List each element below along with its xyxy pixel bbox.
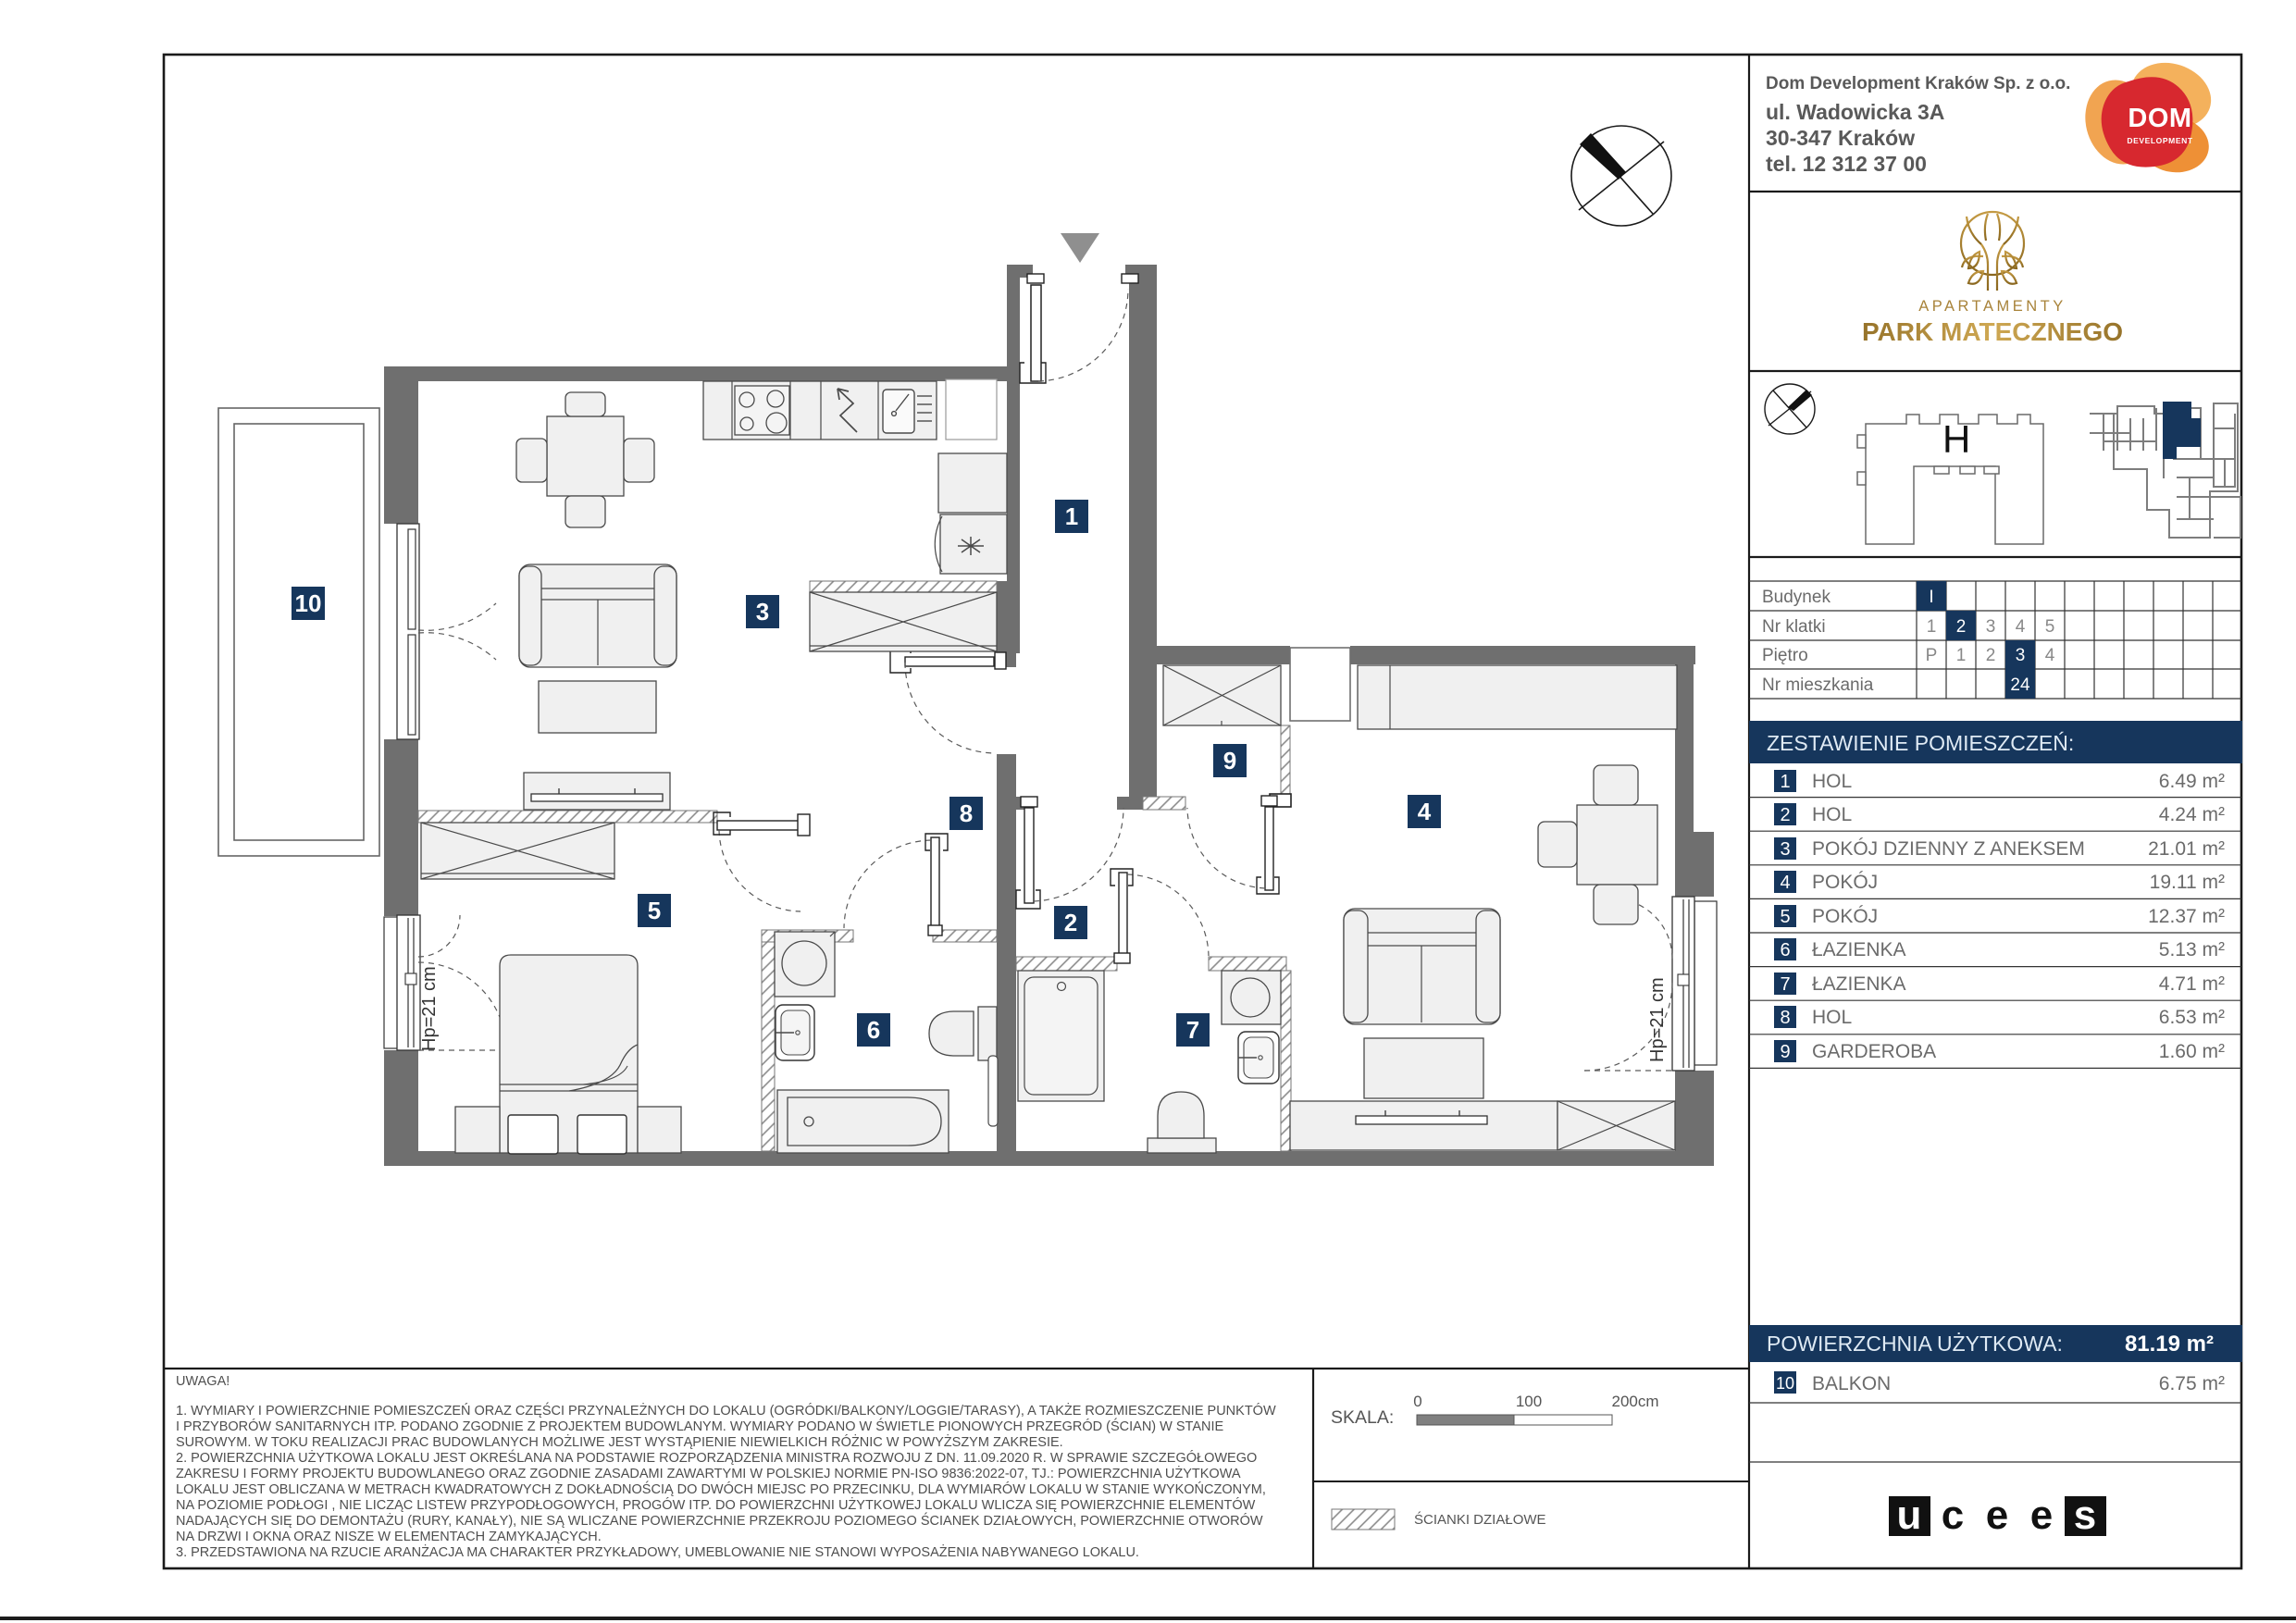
svg-text:u: u <box>1897 1493 1922 1538</box>
svg-text:2: 2 <box>1780 805 1790 825</box>
svg-text:Budynek: Budynek <box>1762 588 1831 607</box>
svg-text:6.75 m²: 6.75 m² <box>2159 1373 2225 1394</box>
svg-text:I PRZYBORÓW SANITARNYCH ITP. P: I PRZYBORÓW SANITARNYCH ITP. PODANO ZGOD… <box>176 1418 1223 1434</box>
svg-text:POKÓJ: POKÓJ <box>1812 906 1878 927</box>
svg-text:POWIERZCHNIA UŻYTKOWA:: POWIERZCHNIA UŻYTKOWA: <box>1767 1332 2063 1356</box>
svg-text:5: 5 <box>2045 617 2055 637</box>
svg-text:9: 9 <box>1223 747 1236 774</box>
svg-text:APARTAMENTY: APARTAMENTY <box>1918 298 2066 315</box>
svg-text:I: I <box>1929 588 1933 607</box>
svg-text:HOL: HOL <box>1812 804 1852 825</box>
svg-text:tel. 12 312 37 00: tel. 12 312 37 00 <box>1766 152 1927 176</box>
svg-text:12.37 m²: 12.37 m² <box>2148 906 2225 927</box>
svg-text:ZAKRESU I FORMY PROJEKTU BUDOW: ZAKRESU I FORMY PROJEKTU BUDOWLANEGO ORA… <box>176 1465 1241 1481</box>
svg-text:3: 3 <box>2016 646 2026 665</box>
svg-text:4: 4 <box>1780 873 1790 893</box>
svg-text:100: 100 <box>1516 1393 1542 1410</box>
svg-text:HOL: HOL <box>1812 1007 1852 1028</box>
svg-text:4.71 m²: 4.71 m² <box>2159 973 2225 995</box>
svg-text:4: 4 <box>2045 646 2055 665</box>
svg-text:7: 7 <box>1780 974 1790 995</box>
svg-text:2. POWIERZCHNIA UŻYTKOWA LOKAL: 2. POWIERZCHNIA UŻYTKOWA LOKALU JEST OKR… <box>176 1449 1257 1466</box>
svg-text:GARDEROBA: GARDEROBA <box>1812 1041 1936 1062</box>
svg-text:4.24 m²: 4.24 m² <box>2159 804 2225 825</box>
svg-text:SUROWYM. W TOKU REALIZACJI PRA: SUROWYM. W TOKU REALIZACJI PRAC BUDOWLAN… <box>176 1433 1063 1450</box>
svg-text:SKALA:: SKALA: <box>1331 1407 1394 1428</box>
svg-text:LOKALU JEST OBLICZANA W METRAC: LOKALU JEST OBLICZANA W METRACH KWADRATO… <box>176 1481 1266 1497</box>
svg-text:5: 5 <box>1780 907 1790 927</box>
svg-text:1.60 m²: 1.60 m² <box>2159 1041 2225 1062</box>
svg-text:1: 1 <box>1956 646 1967 665</box>
svg-text:ul. Wadowicka 3A: ul. Wadowicka 3A <box>1766 100 1944 124</box>
svg-text:200cm: 200cm <box>1611 1393 1658 1410</box>
svg-text:3: 3 <box>1986 617 1996 637</box>
svg-text:P: P <box>1926 646 1938 665</box>
svg-text:s: s <box>2074 1493 2096 1538</box>
svg-text:PARK MATECZNEGO: PARK MATECZNEGO <box>1862 317 2123 346</box>
svg-text:POKÓJ DZIENNY Z ANEKSEM: POKÓJ DZIENNY Z ANEKSEM <box>1812 838 2085 860</box>
svg-text:Nr mieszkania: Nr mieszkania <box>1762 675 1874 695</box>
svg-text:6: 6 <box>1780 940 1790 960</box>
svg-text:c: c <box>1942 1493 1964 1538</box>
svg-text:1: 1 <box>1065 502 1078 530</box>
svg-text:5: 5 <box>648 897 661 924</box>
svg-text:6: 6 <box>867 1016 880 1044</box>
svg-text:DOM: DOM <box>2128 104 2191 133</box>
svg-text:24: 24 <box>2010 675 2030 695</box>
svg-text:Piętro: Piętro <box>1762 646 1808 665</box>
svg-text:BALKON: BALKON <box>1812 1373 1891 1394</box>
svg-text:21.01 m²: 21.01 m² <box>2148 838 2225 860</box>
svg-text:Nr klatki: Nr klatki <box>1762 617 1826 637</box>
svg-text:30-347 Kraków: 30-347 Kraków <box>1766 126 1915 150</box>
svg-text:ZESTAWIENIE POMIESZCZEŃ:: ZESTAWIENIE POMIESZCZEŃ: <box>1767 731 2074 755</box>
svg-text:2: 2 <box>1064 909 1077 936</box>
svg-text:2: 2 <box>1986 646 1996 665</box>
svg-text:6.49 m²: 6.49 m² <box>2159 771 2225 792</box>
svg-text:POKÓJ: POKÓJ <box>1812 872 1878 893</box>
svg-text:1: 1 <box>1927 617 1937 637</box>
svg-text:10: 10 <box>1776 1374 1794 1393</box>
svg-text:DEVELOPMENT: DEVELOPMENT <box>2127 136 2193 145</box>
svg-text:1: 1 <box>1780 772 1790 792</box>
svg-text:Hp=21 cm: Hp=21 cm <box>1647 977 1668 1062</box>
svg-text:ŁAZIENKA: ŁAZIENKA <box>1812 973 1906 995</box>
svg-text:1. WYMIARY I POWIERZCHNIE POMI: 1. WYMIARY I POWIERZCHNIE POMIESZCZEŃ OR… <box>176 1402 1276 1419</box>
svg-text:9: 9 <box>1780 1042 1790 1062</box>
svg-text:Dom Development Kraków Sp. z o: Dom Development Kraków Sp. z o.o. <box>1766 74 2070 93</box>
svg-text:6.53 m²: 6.53 m² <box>2159 1007 2225 1028</box>
svg-text:NA DRZWI I OKNA ORAZ NISZE W E: NA DRZWI I OKNA ORAZ NISZE W ELEMENTACH … <box>176 1530 602 1544</box>
svg-text:NADAJĄCYCH SIĘ DO DEMONTAŻU (R: NADAJĄCYCH SIĘ DO DEMONTAŻU (RURY, KANAŁ… <box>176 1512 1263 1529</box>
svg-text:4: 4 <box>2016 617 2026 637</box>
svg-text:7: 7 <box>1186 1016 1199 1044</box>
svg-text:NA POZIOMIE PODŁOGI , NIE LICZ: NA POZIOMIE PODŁOGI , NIE LICZĄC LISTEW … <box>176 1496 1256 1513</box>
svg-text:5.13 m²: 5.13 m² <box>2159 939 2225 960</box>
svg-text:3: 3 <box>1780 839 1790 860</box>
svg-text:8: 8 <box>960 799 973 827</box>
svg-text:e: e <box>1986 1493 2008 1538</box>
svg-text:0: 0 <box>1413 1393 1421 1410</box>
svg-text:3: 3 <box>756 598 769 626</box>
svg-text:10: 10 <box>295 589 322 617</box>
svg-text:19.11 m²: 19.11 m² <box>2150 872 2225 893</box>
svg-text:e: e <box>2030 1493 2053 1538</box>
svg-text:H: H <box>1942 417 1970 461</box>
svg-text:ŚCIANKI DZIAŁOWE: ŚCIANKI DZIAŁOWE <box>1414 1511 1546 1528</box>
svg-text:Hp=21 cm: Hp=21 cm <box>419 966 440 1051</box>
svg-text:UWAGA!: UWAGA! <box>176 1374 230 1389</box>
svg-text:ŁAZIENKA: ŁAZIENKA <box>1812 939 1906 960</box>
svg-text:81.19 m²: 81.19 m² <box>2125 1332 2214 1357</box>
svg-text:3. PRZEDSTAWIONA NA RZUCIE ARA: 3. PRZEDSTAWIONA NA RZUCIE ARANŻACJA MA … <box>176 1543 1139 1560</box>
svg-text:2: 2 <box>1956 617 1967 637</box>
svg-text:4: 4 <box>1418 798 1432 825</box>
svg-text:HOL: HOL <box>1812 771 1852 792</box>
svg-text:8: 8 <box>1780 1008 1790 1028</box>
